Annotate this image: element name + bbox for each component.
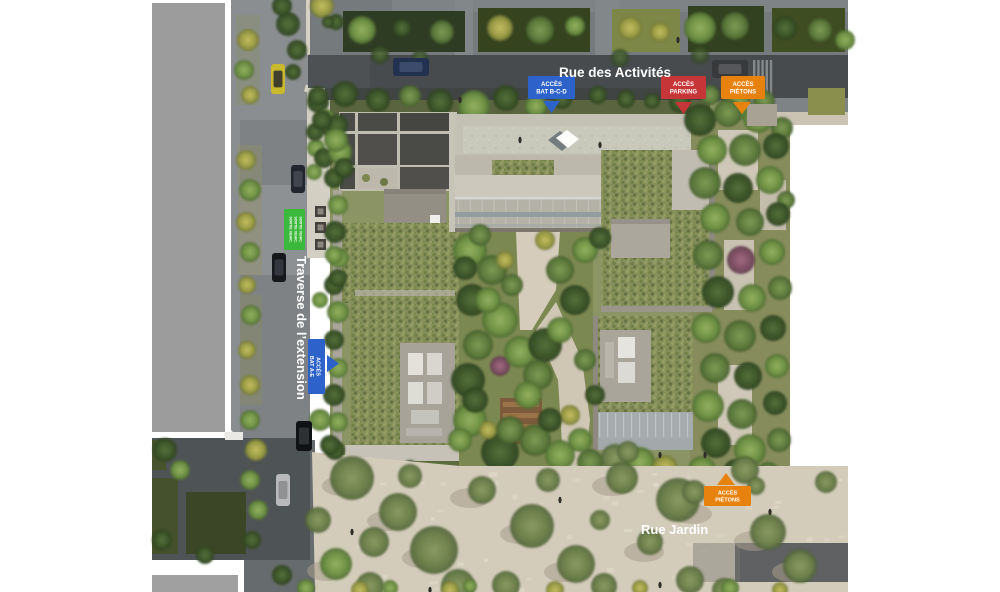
svg-text:ACCÈS: ACCÈS <box>673 80 694 88</box>
svg-text:Rue Jardin: Rue Jardin <box>641 522 708 537</box>
svg-text:ACCÈS: ACCÈS <box>718 489 738 497</box>
svg-text:SORTIE VEHIC.: SORTIE VEHIC. <box>294 216 298 242</box>
svg-text:Rue des Activités: Rue des Activités <box>559 65 671 80</box>
svg-text:ACCÈSBAT A-E: ACCÈSBAT A-E <box>308 356 323 378</box>
svg-text:PARKING: PARKING <box>670 89 698 95</box>
svg-text:PIÉTONS: PIÉTONS <box>715 496 740 504</box>
svg-text:ACCÈS: ACCÈS <box>732 80 753 88</box>
svg-text:PIÉTONS: PIÉTONS <box>730 87 756 95</box>
svg-text:SORTIE VEHIC.: SORTIE VEHIC. <box>299 216 303 242</box>
svg-text:SORTIE VEHIC.: SORTIE VEHIC. <box>289 216 293 242</box>
svg-text:BAT B-C-D: BAT B-C-D <box>536 89 567 95</box>
svg-text:ACCÈS: ACCÈS <box>541 80 562 88</box>
svg-text:Traverse de l’extension: Traverse de l’extension <box>294 256 309 400</box>
